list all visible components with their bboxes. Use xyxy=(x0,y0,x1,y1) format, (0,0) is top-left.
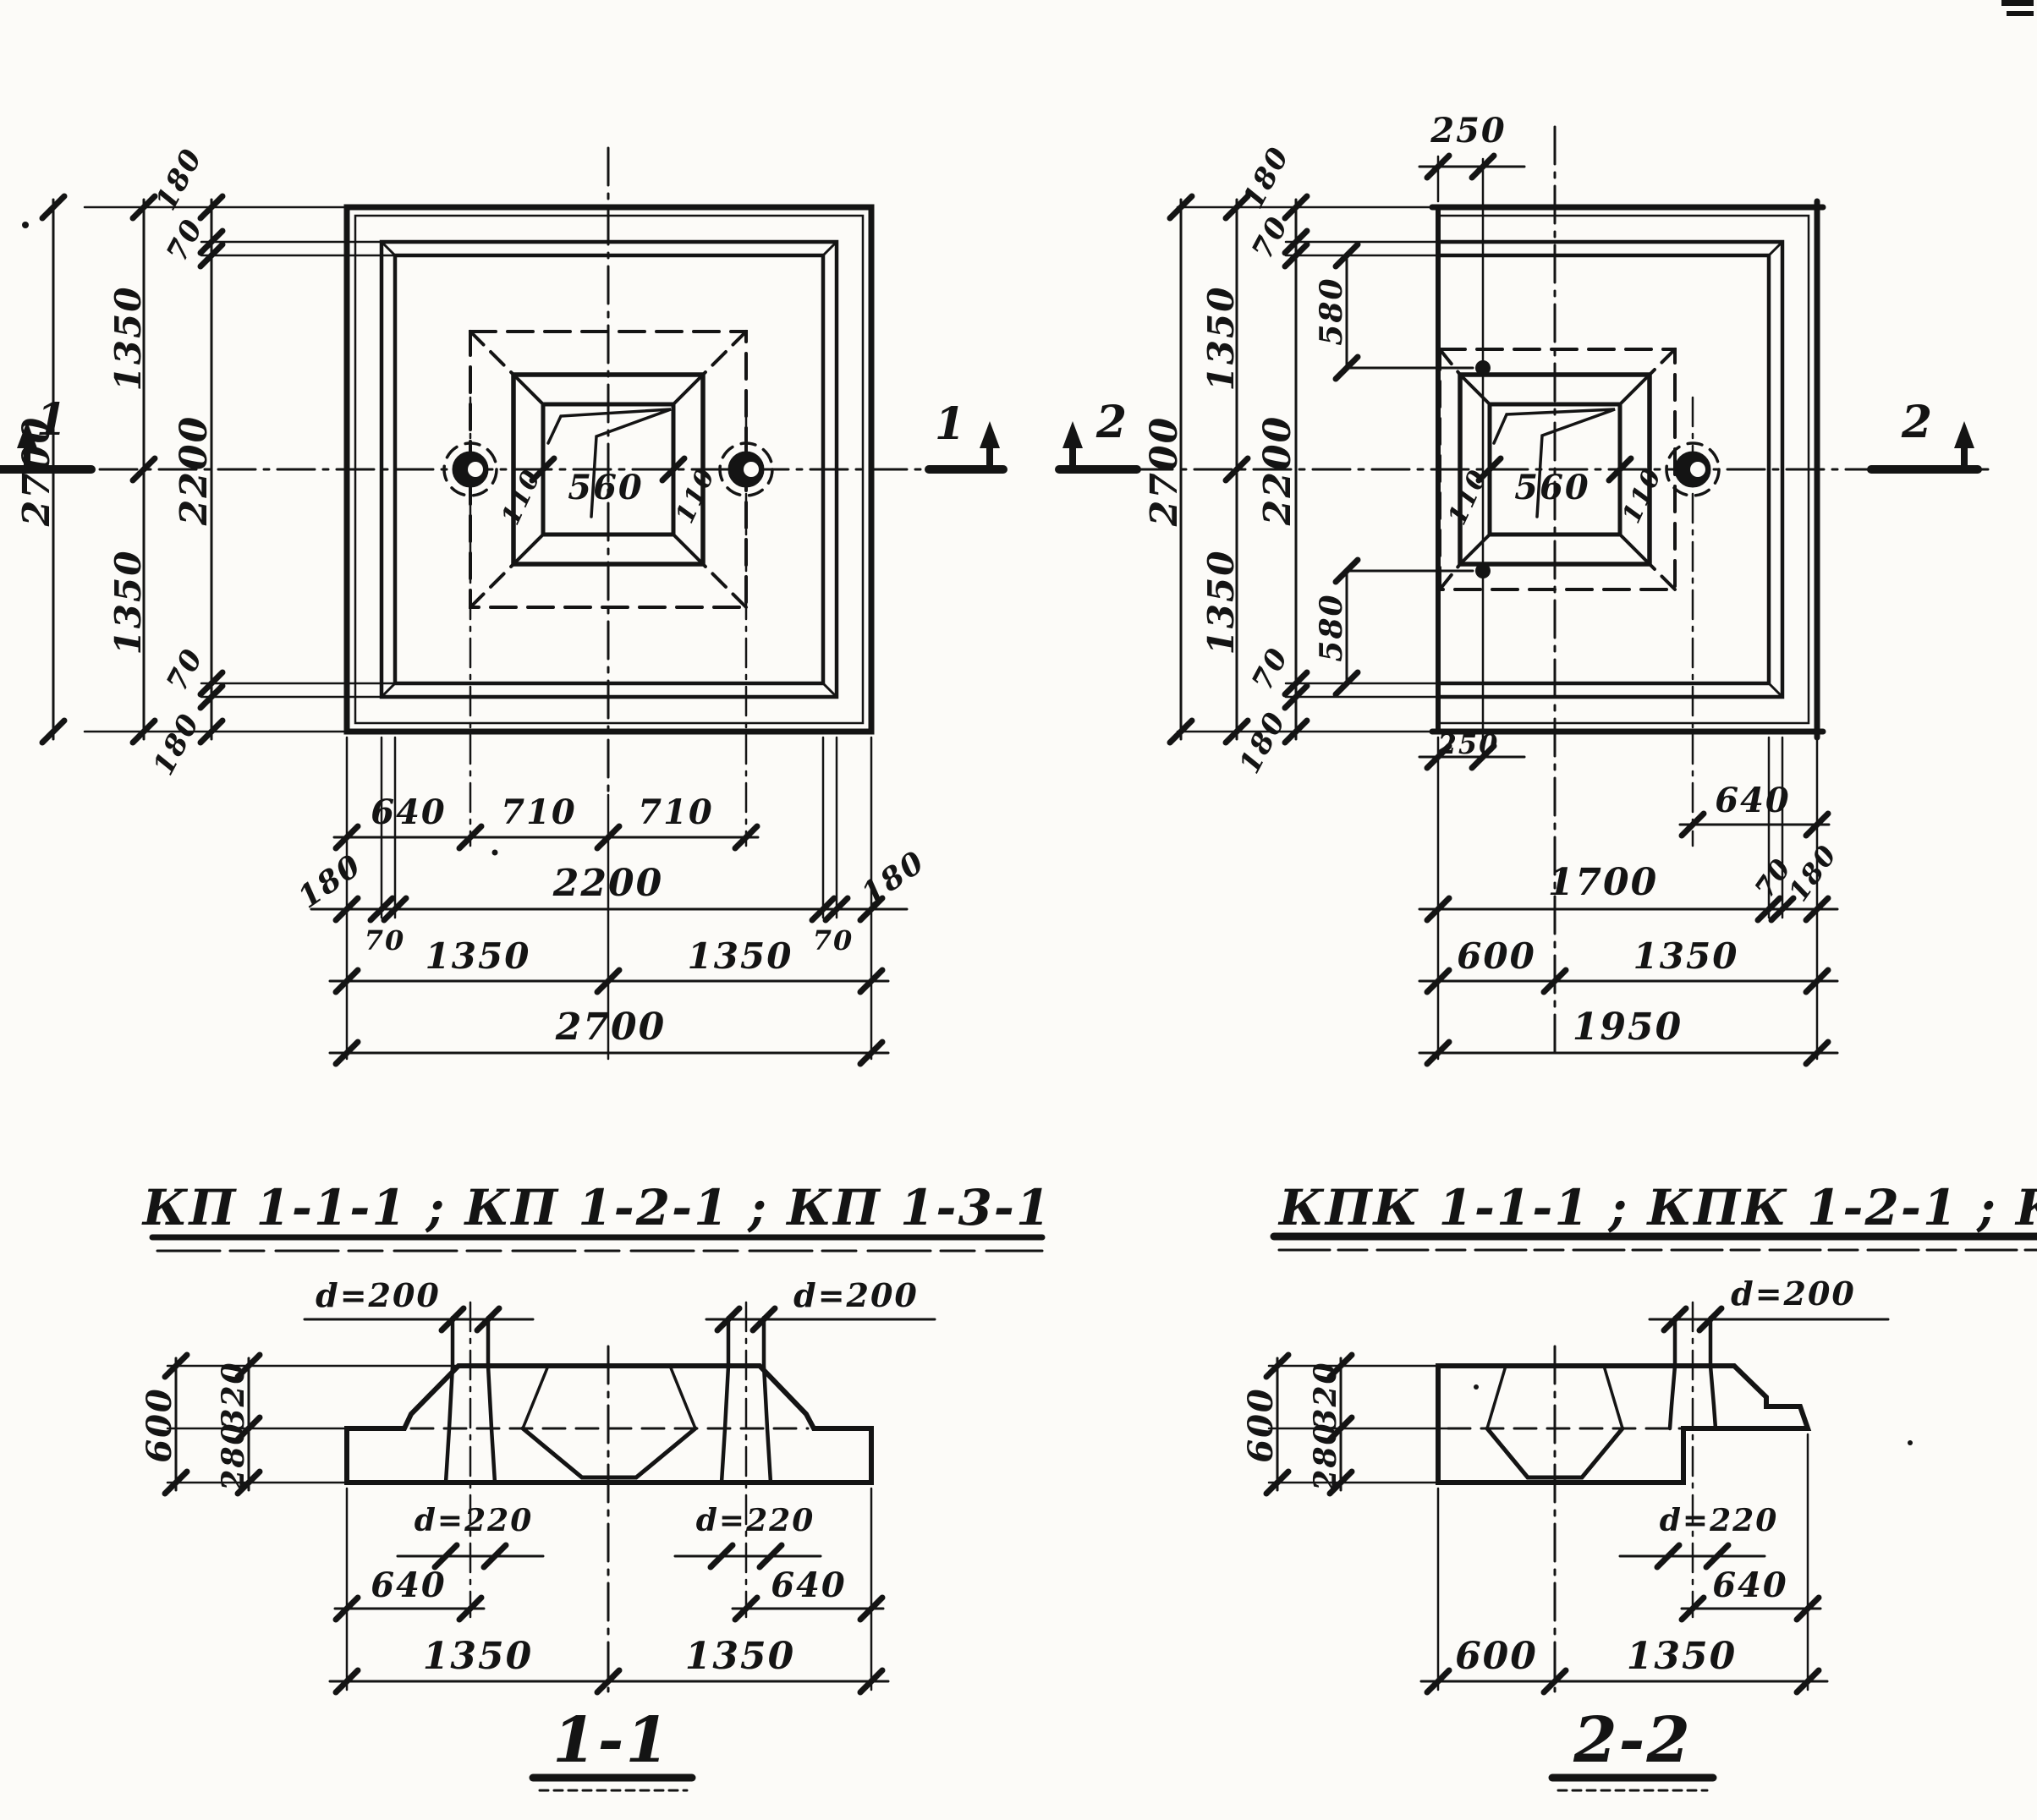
dim-1950: 1950 xyxy=(1573,1009,1683,1046)
section-2-linework xyxy=(1438,1302,1808,1691)
dim-320-v: 320 xyxy=(1310,1361,1341,1429)
title-underlines xyxy=(152,1236,2037,1251)
section-arrow-icon xyxy=(1954,421,1974,470)
pin-hole-icon xyxy=(1475,563,1491,578)
section-marker-1-right: 1 xyxy=(935,403,967,447)
dim-640: 640 xyxy=(371,796,447,830)
plan-left-dimensions xyxy=(42,196,907,1064)
dim-320-v: 320 xyxy=(218,1361,249,1429)
dim-1350-br: 1350 xyxy=(688,939,793,974)
dim-1350-bot: 1350 xyxy=(1204,550,1239,655)
pin-hole-icon xyxy=(1475,360,1491,376)
dim-2200-v: 2200 xyxy=(1260,415,1297,525)
section-title-1-1: 1-1 xyxy=(552,1709,671,1772)
dim-d200: d=200 xyxy=(1731,1278,1856,1310)
dim-710-r: 710 xyxy=(638,796,714,830)
dim-580-bot: 580 xyxy=(1316,593,1347,661)
plan-right-section-markers xyxy=(1059,421,1978,470)
dim-2700-b: 2700 xyxy=(556,1009,666,1046)
dim-710-l: 710 xyxy=(501,796,577,830)
dim-1350-l: 1350 xyxy=(423,1638,533,1675)
dim-1350-top: 1350 xyxy=(1204,286,1239,392)
blueprint-sheet: 1 1 180 70 1350 2200 1350 70 180 2700 11… xyxy=(0,0,2037,1820)
dim-2200-b: 2200 xyxy=(553,865,663,902)
dim-d220: d=220 xyxy=(1660,1505,1778,1536)
section-marker-2-left: 2 xyxy=(1096,401,1128,445)
dim-2200-v: 2200 xyxy=(176,415,213,525)
dim-640: 640 xyxy=(1715,784,1791,818)
dim-d200-left: d=200 xyxy=(316,1280,441,1312)
dim-600-b: 600 xyxy=(1455,1638,1538,1675)
dim-640-l: 640 xyxy=(371,1569,447,1603)
section-1-dimensions xyxy=(165,1308,935,1790)
title-kp-series: КП 1-1-1 ; КП 1-2-1 ; КП 1-3-1 xyxy=(143,1183,1052,1232)
dim-70-br: 70 xyxy=(813,927,854,954)
section-arrow-icon xyxy=(1062,421,1083,470)
dim-70-bl: 70 xyxy=(365,927,406,954)
dim-560: 560 xyxy=(568,471,644,505)
drawing-canvas xyxy=(0,0,2037,1820)
dim-640-r: 640 xyxy=(771,1569,847,1603)
dim-1350-b: 1350 xyxy=(1627,1638,1737,1675)
dim-600-v: 600 xyxy=(1244,1387,1278,1463)
dim-d200-right: d=200 xyxy=(793,1280,919,1312)
dim-d220-left: d=220 xyxy=(415,1505,533,1536)
dim-280-v: 280 xyxy=(218,1422,249,1490)
dim-640: 640 xyxy=(1712,1569,1788,1603)
section-title-2-2: 2-2 xyxy=(1573,1709,1692,1772)
dim-1350-top: 1350 xyxy=(111,286,146,392)
plan-right-dimensions xyxy=(1170,156,1837,1064)
title-kpk-series: КПК 1-1-1 ; КПК 1-2-1 ; КПК 1-3-1 xyxy=(1279,1183,2037,1232)
dim-600-v: 600 xyxy=(143,1387,177,1463)
dim-2700-v: 2700 xyxy=(1146,416,1183,526)
dim-1350-bl: 1350 xyxy=(426,939,531,974)
dim-580-top: 580 xyxy=(1316,277,1347,345)
dim-250-top: 250 xyxy=(1430,114,1507,148)
section-marker-2-right: 2 xyxy=(1902,401,1934,445)
section-arrow-icon xyxy=(980,421,1000,470)
dim-1350-bot: 1350 xyxy=(111,550,146,655)
dim-1350: 1350 xyxy=(1633,939,1739,974)
section-1-linework xyxy=(347,1302,871,1691)
dim-280-v: 280 xyxy=(1310,1422,1341,1490)
dim-1350-r: 1350 xyxy=(685,1638,795,1675)
dim-1700: 1700 xyxy=(1548,864,1658,902)
dim-560: 560 xyxy=(1514,471,1590,505)
dim-2700-v: 2700 xyxy=(19,416,56,526)
dim-250-bot: 250 xyxy=(1438,731,1500,758)
dim-d220-right: d=220 xyxy=(696,1505,815,1536)
plan-left-linework xyxy=(100,148,1000,846)
dim-600: 600 xyxy=(1457,939,1536,974)
